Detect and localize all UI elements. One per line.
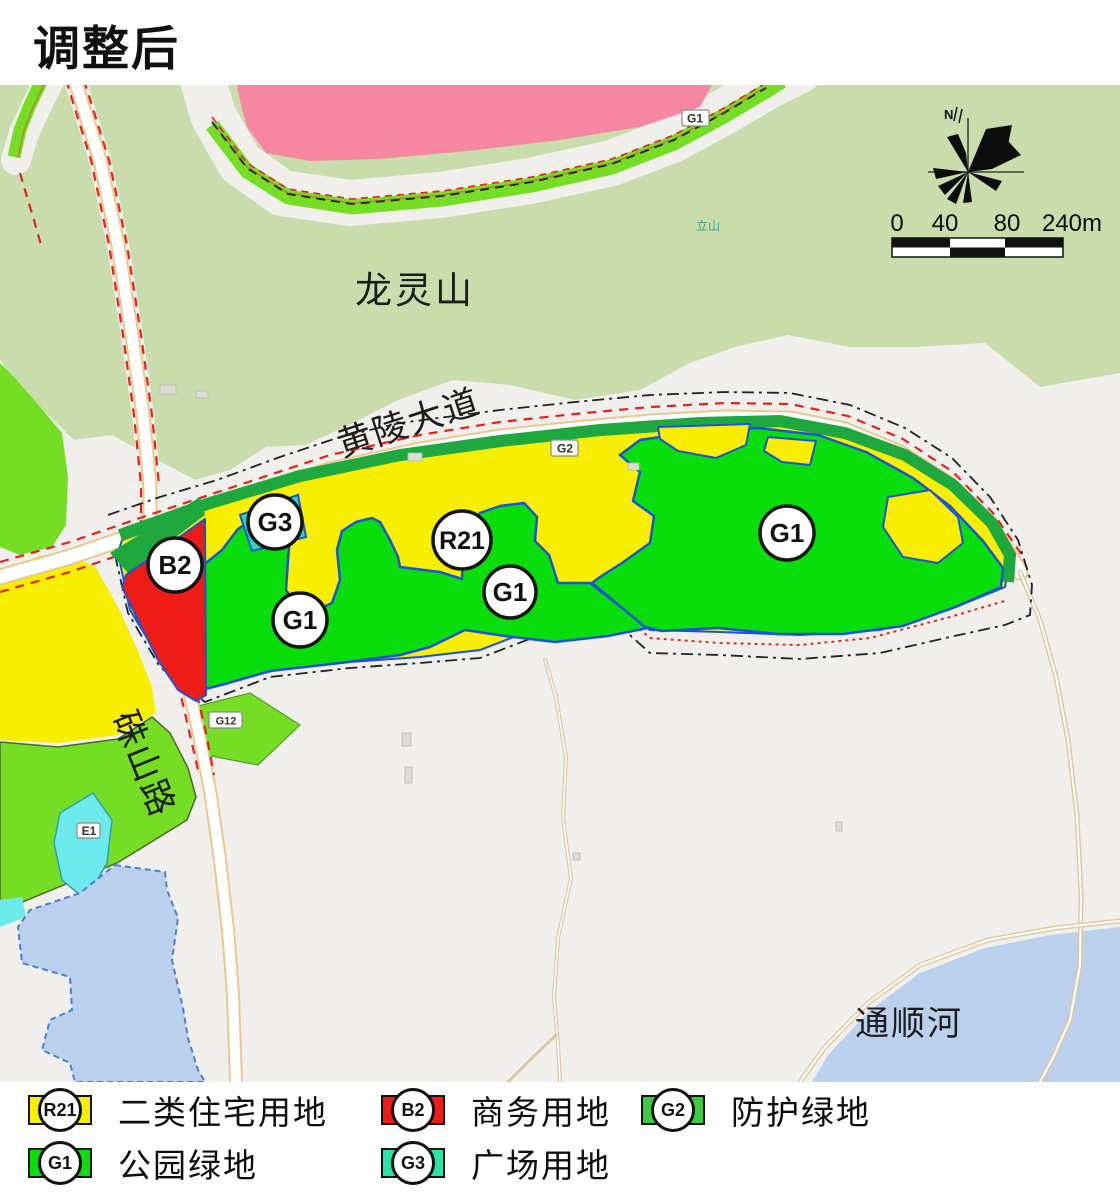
legend-swatch-g1: G1 [28,1148,92,1178]
label-river: 通顺河 [855,1005,963,1043]
square-badge-e1: E1 [77,823,100,838]
legend: R21 二类住宅用地 B2 商务用地 G2 防护绿地 G1 公园绿地 G3 [0,1082,1120,1196]
square-badge-g1: G1 [682,110,709,126]
legend-label-g2: 防护绿地 [731,1086,871,1134]
legend-item-r21: R21 二类住宅用地 [28,1087,328,1133]
legend-label-g1: 公园绿地 [118,1139,258,1187]
legend-badge-g1: G1 [38,1141,82,1185]
zone-badge-g1-east: G1 [760,506,814,560]
legend-item-g1: G1 公园绿地 [28,1140,258,1186]
legend-swatch-b2: B2 [381,1095,445,1125]
legend-badge-b2: B2 [391,1088,435,1132]
svg-text:B2: B2 [158,550,191,580]
zone-badge-r21: R21 [433,511,491,569]
legend-badge-g3: G3 [391,1141,435,1185]
square-badge-g12: G12 [209,712,242,728]
label-mountain: 龙灵山 [355,270,475,311]
zone-badge-g1-mid: G1 [484,566,536,618]
svg-text:E1: E1 [82,824,97,838]
legend-badge-g2: G2 [651,1088,695,1132]
scale-tick-0: 0 [890,210,903,237]
svg-text:G2: G2 [557,442,573,456]
scale-tick-240m: 240m [1042,210,1102,237]
zone-badge-g1-west: G1 [273,593,327,647]
scale-tick-40: 40 [932,210,959,237]
scale-tick-80: 80 [994,210,1021,237]
legend-swatch-g2: G2 [641,1095,705,1125]
legend-label-g3: 广场用地 [471,1139,611,1187]
map: 龙灵山 黄陵大道 硃山路 通顺河 立山 G1 G2 G12 E1 [0,85,1120,1082]
svg-text:G1: G1 [493,577,528,607]
svg-text:G1: G1 [283,605,318,635]
legend-swatch-g3: G3 [381,1148,445,1178]
svg-text:G1: G1 [687,112,703,126]
label-hill: 立山 [696,218,720,233]
legend-item-b2: B2 商务用地 [381,1087,611,1133]
page-title: 调整后 [33,10,180,79]
legend-badge-r21: R21 [38,1088,82,1132]
svg-text:G3: G3 [258,507,293,537]
zone-badge-g3: G3 [248,495,302,549]
planning-map-page: 调整后 [0,0,1120,1196]
legend-swatch-r21: R21 [28,1095,92,1125]
legend-item-g2: G2 防护绿地 [641,1087,871,1133]
legend-item-g3: G3 广场用地 [381,1140,611,1186]
legend-label-r21: 二类住宅用地 [118,1086,328,1134]
zone-badge-b2: B2 [148,538,202,592]
compass-north-label: N [944,107,953,122]
square-badge-g2: G2 [551,440,578,456]
map-canvas: 龙灵山 黄陵大道 硃山路 通顺河 立山 G1 G2 G12 E1 [0,85,1120,1082]
legend-label-b2: 商务用地 [471,1086,611,1134]
svg-text:G1: G1 [770,518,805,548]
svg-text:R21: R21 [439,527,485,555]
svg-text:G12: G12 [216,716,237,728]
